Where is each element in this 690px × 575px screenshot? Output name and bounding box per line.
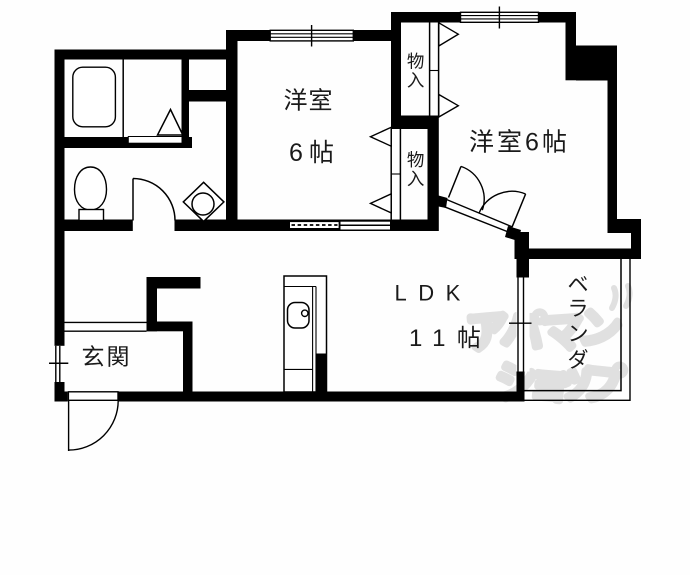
svg-text:LDK: LDK [395, 281, 472, 306]
svg-text:ラ: ラ [568, 298, 589, 321]
svg-text:入: 入 [407, 169, 425, 189]
svg-text:玄関: 玄関 [82, 344, 132, 370]
svg-text:ン: ン [568, 323, 589, 346]
svg-text:11帖: 11帖 [409, 325, 492, 352]
svg-text:6帖: 6帖 [289, 139, 340, 167]
svg-text:物: 物 [407, 52, 425, 72]
svg-text:ダ: ダ [568, 349, 589, 372]
svg-text:物: 物 [407, 150, 425, 170]
svg-text:ベ: ベ [568, 274, 589, 297]
svg-text:洋室6帖: 洋室6帖 [469, 129, 570, 157]
svg-text:入: 入 [407, 71, 425, 91]
svg-text:洋室: 洋室 [284, 88, 334, 115]
